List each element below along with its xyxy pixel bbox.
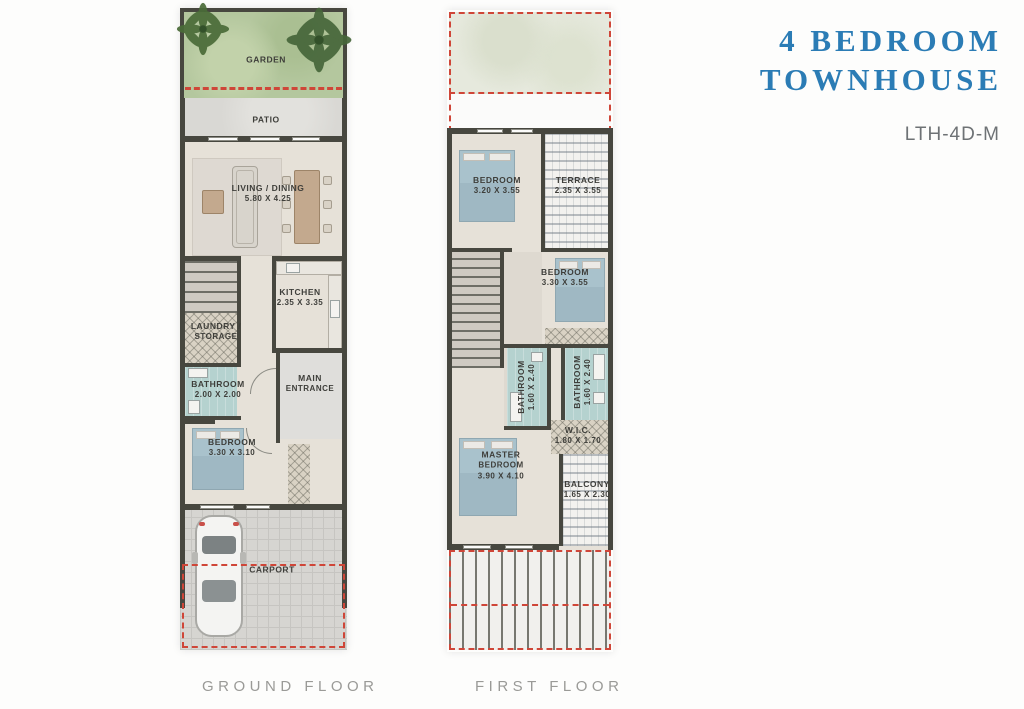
palm-tree-icon bbox=[283, 4, 355, 76]
room-label-bathroom1: BATHROOM 1.60 X 2.40 bbox=[516, 360, 538, 413]
room-label-kitchen: KITCHEN 2.35 X 3.35 bbox=[277, 287, 323, 309]
room-label-main-entrance: MAIN ENTRANCE bbox=[286, 373, 334, 395]
room-label-balcony: BALCONY 1.65 X 2.30 bbox=[564, 479, 610, 501]
washbasin bbox=[188, 368, 208, 378]
toilet bbox=[188, 400, 200, 414]
room-label-patio: PATIO bbox=[252, 114, 279, 125]
window bbox=[505, 545, 533, 549]
window bbox=[250, 137, 280, 141]
window bbox=[208, 137, 238, 141]
staircase bbox=[185, 261, 237, 313]
room-label-bedroom1: BEDROOM 3.20 X 3.55 bbox=[473, 175, 521, 197]
garden-below-dashed bbox=[449, 12, 611, 94]
wardrobe bbox=[545, 328, 608, 344]
window bbox=[463, 545, 491, 549]
plot-boundary-dashed bbox=[185, 87, 342, 90]
ground-floor-plan: GARDEN PATIO LIVING / DINING 5.80 X 4.25 bbox=[180, 8, 347, 650]
dining-table bbox=[294, 170, 320, 244]
pergola-dashed-line bbox=[451, 604, 609, 606]
window bbox=[511, 129, 533, 133]
room-label-bedroom2: BEDROOM 3.30 X 3.55 bbox=[541, 267, 589, 289]
shower bbox=[593, 354, 605, 380]
room-label-wic: W.I.C. 1.80 X 1.70 bbox=[555, 425, 601, 447]
chair bbox=[323, 200, 332, 209]
patio-below-dashed bbox=[449, 94, 611, 132]
room-label-master-bedroom: MASTER BEDROOM 3.90 X 4.10 bbox=[478, 449, 524, 482]
page-title: 4 BEDROOM TOWNHOUSE bbox=[760, 22, 1002, 100]
window bbox=[292, 137, 320, 141]
window bbox=[246, 505, 270, 509]
chair bbox=[282, 224, 291, 233]
chair bbox=[323, 176, 332, 185]
room-label-terrace: TERRACE 2.35 X 3.55 bbox=[555, 175, 601, 197]
room-label-garden: GARDEN bbox=[246, 54, 286, 65]
room-label-bathroom2: BATHROOM 1.60 X 2.40 bbox=[572, 355, 594, 408]
entrance-area bbox=[280, 353, 342, 439]
coffee-table bbox=[202, 190, 224, 214]
chair bbox=[323, 224, 332, 233]
ground-floor-caption: GROUND FLOOR bbox=[202, 678, 379, 695]
title-line1: 4 BEDROOM bbox=[779, 23, 1002, 58]
wardrobe bbox=[288, 444, 310, 506]
sofa-icon bbox=[232, 166, 258, 248]
window bbox=[200, 505, 234, 509]
stove bbox=[330, 300, 340, 318]
room-label-laundry: LAUNDRY / STORAGE bbox=[191, 321, 241, 343]
room-label-bedroom: BEDROOM 3.30 X 3.10 bbox=[208, 437, 256, 459]
first-floor-caption: FIRST FLOOR bbox=[475, 678, 623, 695]
room-label-living-dining: LIVING / DINING 5.80 X 4.25 bbox=[232, 183, 305, 205]
staircase bbox=[452, 252, 500, 368]
unit-code: LTH-4D-M bbox=[905, 124, 1000, 146]
first-floor-plan: BEDROOM 3.20 X 3.55 TERRACE 2.35 X 3.55 … bbox=[447, 10, 613, 652]
pergola-boundary-dashed bbox=[449, 550, 611, 650]
window bbox=[477, 129, 503, 133]
brochure-page: 4 BEDROOM TOWNHOUSE LTH-4D-M bbox=[0, 0, 1024, 709]
kitchen-sink bbox=[286, 263, 300, 273]
palm-tree-icon bbox=[174, 0, 232, 58]
title-line2: TOWNHOUSE bbox=[760, 62, 1002, 97]
room-label-bathroom: BATHROOM 2.00 X 2.00 bbox=[191, 379, 244, 401]
carport-boundary-dashed bbox=[182, 564, 345, 648]
toilet bbox=[593, 392, 605, 404]
